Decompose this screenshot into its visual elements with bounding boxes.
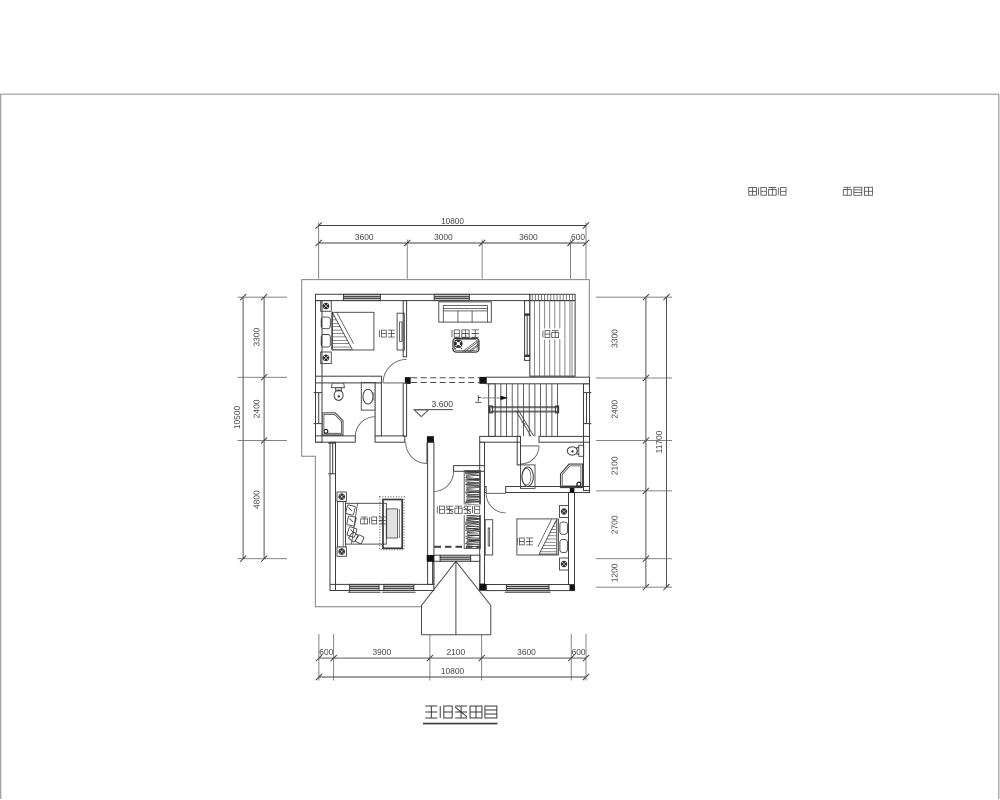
svg-text:600: 600 <box>572 647 586 657</box>
svg-text:3600: 3600 <box>519 232 538 242</box>
svg-text:2100: 2100 <box>446 647 465 657</box>
svg-text:10800: 10800 <box>441 217 464 226</box>
svg-text:1200: 1200 <box>609 563 619 582</box>
svg-text:4800: 4800 <box>252 490 262 509</box>
svg-text:3600: 3600 <box>517 647 536 657</box>
svg-text:3900: 3900 <box>372 647 391 657</box>
svg-text:3300: 3300 <box>609 329 619 348</box>
svg-text:600: 600 <box>319 647 333 657</box>
svg-text:2400: 2400 <box>252 399 262 418</box>
svg-text:10500: 10500 <box>232 406 242 430</box>
svg-text:2400: 2400 <box>609 400 619 419</box>
svg-text:3600: 3600 <box>355 232 374 242</box>
svg-text:600: 600 <box>571 232 585 242</box>
svg-text:3300: 3300 <box>252 328 262 347</box>
svg-text:11700: 11700 <box>654 430 664 453</box>
svg-text:2100: 2100 <box>609 456 619 475</box>
svg-text:3000: 3000 <box>434 232 453 242</box>
svg-text:2700: 2700 <box>609 515 619 534</box>
svg-text:3.600: 3.600 <box>432 399 454 409</box>
svg-text:10800: 10800 <box>441 666 465 676</box>
